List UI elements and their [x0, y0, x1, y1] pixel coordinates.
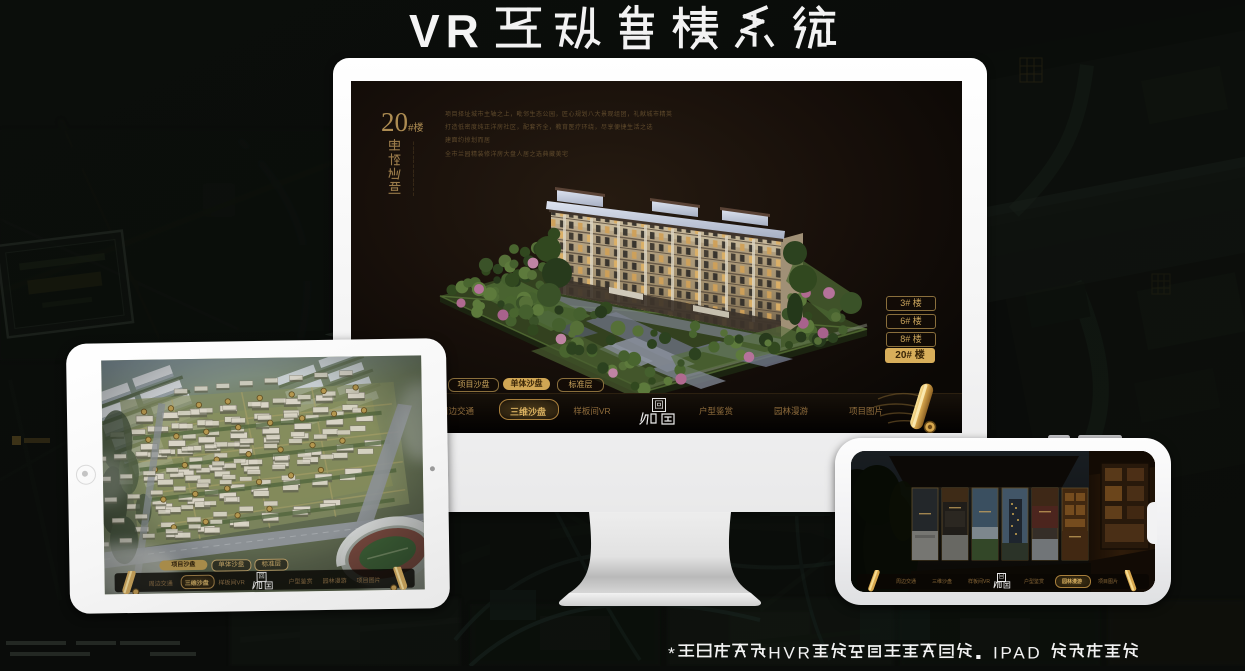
svg-text:IPAD: IPAD [993, 644, 1042, 663]
svg-text:*: * [668, 643, 675, 663]
svg-text:HVR: HVR [768, 644, 812, 663]
svg-text:VR: VR [409, 5, 485, 57]
